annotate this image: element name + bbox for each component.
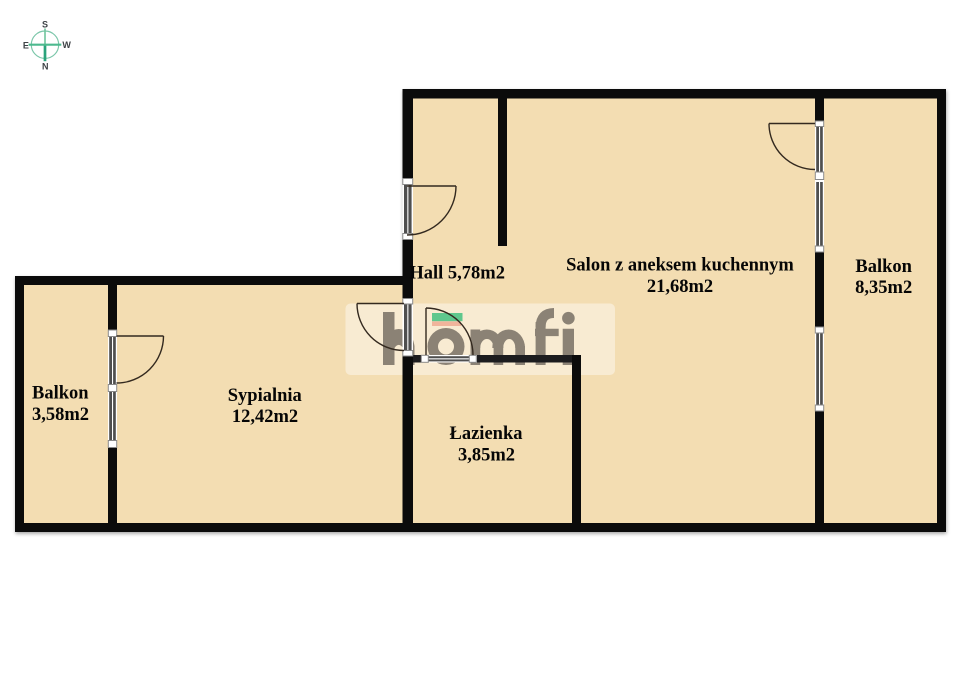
svg-text:8,35m2: 8,35m2 [855, 278, 912, 298]
svg-text:21,68m2: 21,68m2 [647, 277, 713, 297]
svg-text:E: E [23, 40, 29, 50]
svg-text:Balkon: Balkon [32, 384, 89, 404]
svg-text:3,58m2: 3,58m2 [32, 405, 89, 425]
svg-text:3,85m2: 3,85m2 [458, 445, 515, 465]
svg-text:W: W [62, 40, 71, 50]
svg-text:S: S [42, 19, 48, 29]
svg-text:Sypialnia: Sypialnia [228, 386, 302, 406]
svg-text:12,42m2: 12,42m2 [232, 407, 298, 427]
svg-text:Hall 5,78m2: Hall 5,78m2 [409, 263, 505, 283]
svg-text:Balkon: Balkon [855, 257, 912, 277]
svg-text:Łazienka: Łazienka [450, 424, 523, 444]
svg-text:N: N [42, 61, 49, 71]
svg-text:Salon z aneksem kuchennym: Salon z aneksem kuchennym [566, 255, 794, 275]
